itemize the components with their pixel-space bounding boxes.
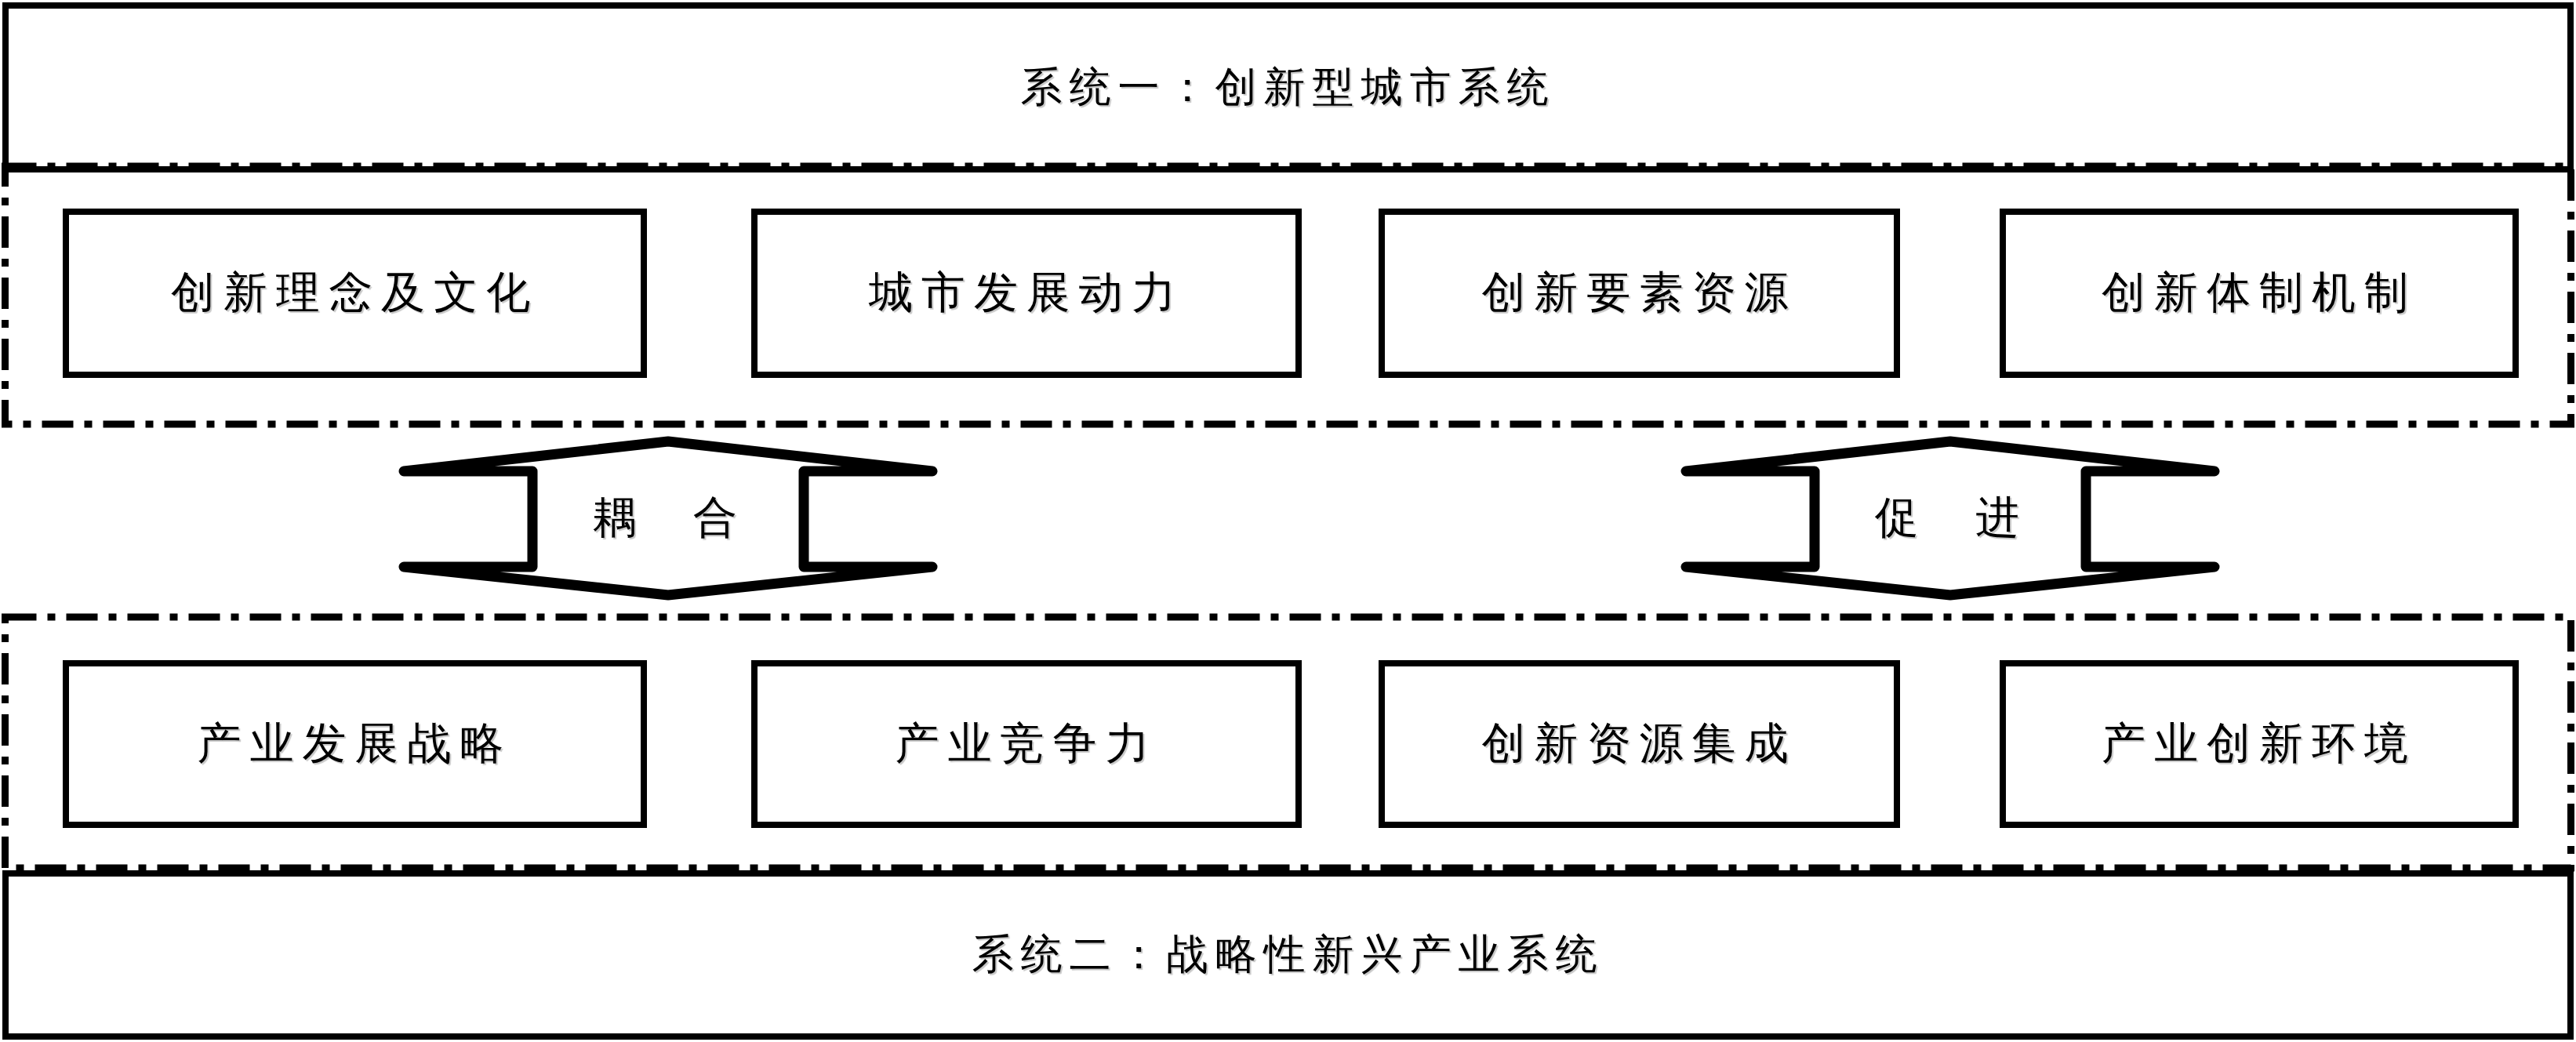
node-label: 城市发展动力	[869, 263, 1184, 323]
coupling-connector: 耦 合	[398, 436, 938, 601]
node-label: 创新理念及文化	[171, 263, 539, 323]
system1-title: 系统一：创新型城市系统	[1021, 60, 1556, 116]
node-label: 创新资源集成	[1482, 714, 1797, 774]
system1-panel: 系统一：创新型城市系统	[2, 2, 2574, 172]
promotion-connector: 促 进	[1680, 436, 2220, 601]
node-label: 产业发展战略	[198, 714, 513, 774]
node-label: 产业创新环境	[2102, 714, 2417, 774]
system2-node-4: 产业创新环境	[2000, 660, 2519, 828]
system2-node-3: 创新资源集成	[1379, 660, 1900, 828]
coupling-label: 耦 合	[398, 436, 938, 601]
system2-node-2: 产业竞争力	[751, 660, 1302, 828]
system2-node-1: 产业发展战略	[63, 660, 647, 828]
node-label: 创新体制机制	[2102, 263, 2417, 323]
system1-node-3: 创新要素资源	[1379, 209, 1900, 378]
system1-node-2: 城市发展动力	[751, 209, 1302, 378]
promotion-label: 促 进	[1680, 436, 2220, 601]
coupling-diagram: 系统一：创新型城市系统 创新理念及文化 城市发展动力 创新要素资源 创新体制机制…	[0, 0, 2576, 1042]
system1-node-1: 创新理念及文化	[63, 209, 647, 378]
system1-node-4: 创新体制机制	[2000, 209, 2519, 378]
node-label: 产业竞争力	[896, 714, 1158, 774]
node-label: 创新要素资源	[1482, 263, 1797, 323]
system2-title: 系统二：战略性新兴产业系统	[972, 927, 1604, 983]
system2-panel: 系统二：战略性新兴产业系统	[2, 870, 2574, 1040]
